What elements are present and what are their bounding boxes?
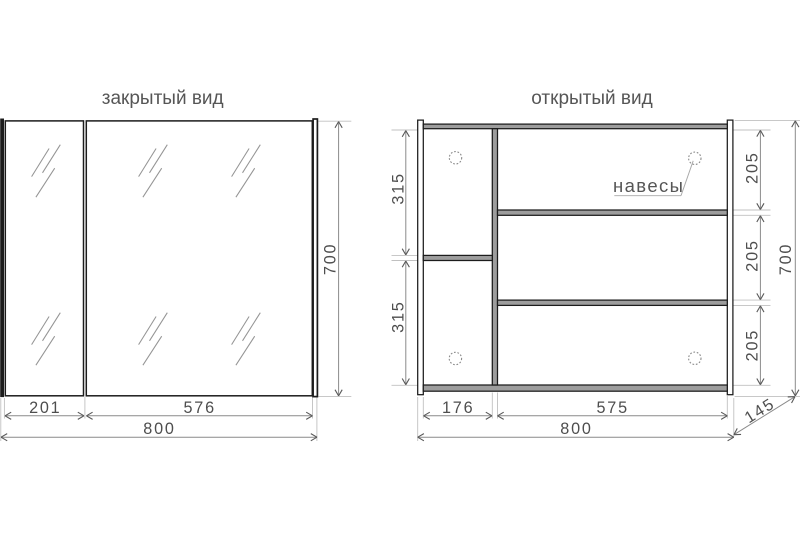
svg-text:700: 700 — [321, 243, 339, 275]
svg-text:открытый вид: открытый вид — [531, 88, 652, 109]
svg-text:315: 315 — [389, 300, 407, 332]
svg-text:575: 575 — [596, 399, 628, 417]
svg-text:176: 176 — [442, 399, 474, 417]
svg-text:205: 205 — [743, 239, 761, 271]
svg-text:576: 576 — [183, 399, 215, 417]
svg-text:201: 201 — [29, 399, 61, 417]
svg-text:700: 700 — [777, 243, 795, 275]
svg-text:315: 315 — [389, 172, 407, 204]
svg-text:205: 205 — [743, 151, 761, 183]
svg-text:навесы: навесы — [613, 175, 684, 196]
svg-text:закрытый вид: закрытый вид — [102, 88, 224, 109]
svg-text:800: 800 — [143, 420, 175, 438]
svg-text:205: 205 — [743, 329, 761, 361]
svg-text:800: 800 — [560, 420, 592, 438]
